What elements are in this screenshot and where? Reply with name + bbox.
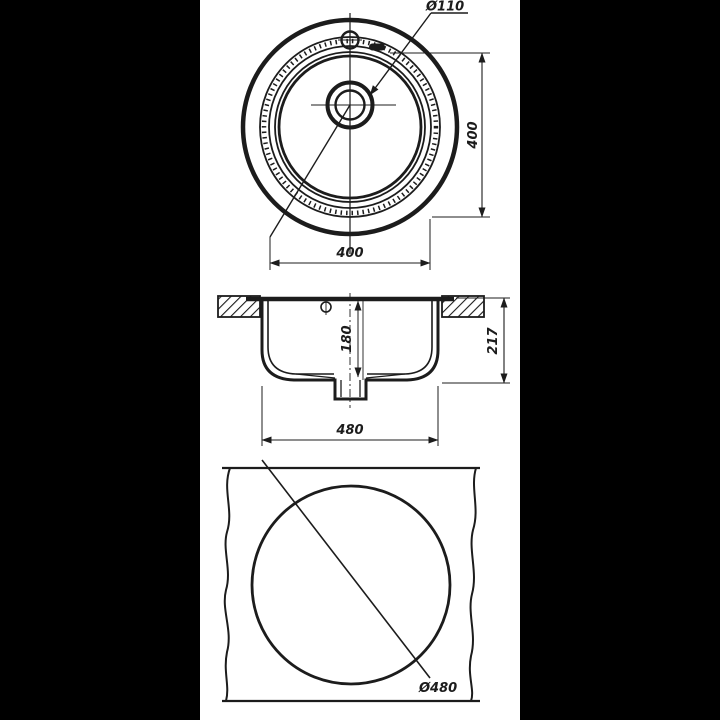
overflow-slot — [369, 44, 385, 51]
cutout-circle — [252, 486, 450, 684]
bowl-height-label: 400 — [466, 121, 481, 149]
bowl-width-label: 400 — [335, 246, 363, 261]
overall-height-label: 217 — [486, 326, 501, 354]
cutout-diameter-label: Ø480 — [418, 681, 457, 696]
panel-left-break-edge — [225, 468, 230, 701]
body-width-label: 480 — [335, 423, 363, 438]
bowl-depth-label: 180 — [340, 325, 355, 352]
sink-technical-drawing: Ø110 400 400 — [200, 0, 520, 720]
drawing-photo: Ø110 400 400 — [0, 0, 720, 720]
section-view: 180 217 480 — [218, 293, 510, 446]
panel-right-break-edge — [470, 468, 476, 701]
cutout-diameter-line — [262, 460, 430, 678]
cutout-view: Ø480 — [222, 460, 480, 701]
top-view: Ø110 400 400 — [243, 0, 490, 270]
drain-diameter-label: Ø110 — [425, 0, 464, 15]
drawing-paper: Ø110 400 400 — [200, 0, 520, 720]
